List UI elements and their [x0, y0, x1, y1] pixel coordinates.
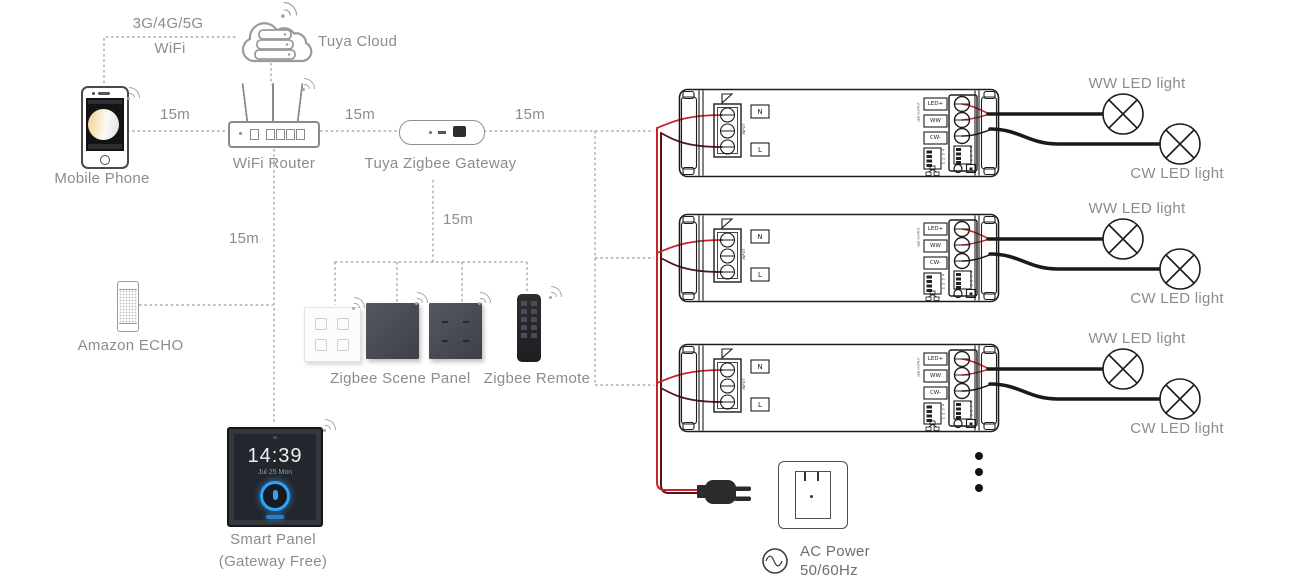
network-label-line1: 3G/4G/5G: [118, 15, 218, 34]
mobile-phone-device: [81, 86, 129, 169]
ac-power-label-line1: AC Power: [800, 543, 870, 562]
output-label: LED OUTPUT: [917, 226, 921, 248]
remote-label: Zigbee Remote: [482, 370, 592, 389]
ww-label: WW: [924, 118, 947, 124]
terminal-l-label: L: [752, 146, 768, 154]
ww-led-lamp-2: [1103, 219, 1143, 259]
phone-home-button: [100, 155, 110, 165]
zigbee-gateway-device: [399, 120, 485, 145]
phone-screen: [86, 98, 124, 151]
dip-numbers: 1 2 3 4: [970, 402, 974, 416]
input-label: INPUT: [742, 120, 747, 138]
dashed-links: [104, 37, 654, 423]
dip-numbers: 1 2 3 4: [942, 275, 946, 289]
dip-numbers: 1 2 3 4: [942, 150, 946, 164]
scene-panel-white: [304, 307, 361, 362]
remote-buttons: [521, 301, 527, 306]
output-label: LED OUTPUT: [917, 356, 921, 378]
cw-light-label: CW LED light: [1112, 165, 1242, 184]
terminal-l-label: L: [752, 271, 768, 279]
echo-label: Amazon ECHO: [68, 337, 193, 356]
cloud-label: Tuya Cloud: [318, 33, 397, 52]
led-controller-2: N L INPUT LED OUTPUT LED+ WW CW- 1 2 3 4…: [678, 213, 1000, 303]
ww-label: WW: [924, 243, 947, 249]
ww-light-label: WW LED light: [1072, 330, 1202, 349]
wall-socket-icon: [778, 461, 848, 529]
gateway-label: Tuya Zigbee Gateway: [358, 155, 523, 174]
power-wire-dark: [661, 133, 700, 493]
voice-button: [260, 481, 290, 511]
output-label: LED OUTPUT: [917, 101, 921, 123]
tuya-cloud-icon: [233, 8, 317, 70]
smart-panel-screen: 14:39 Jul 25 Mon: [234, 434, 316, 520]
ac-power-label-line2: 50/60Hz: [800, 562, 858, 581]
phone-label: Mobile Phone: [52, 170, 152, 189]
scene-panel-label: Zigbee Scene Panel: [330, 370, 470, 389]
cw-led-lamp-3: [1160, 379, 1200, 419]
more-controllers-ellipsis: [975, 452, 983, 492]
led-plus-label: LED+: [924, 356, 947, 362]
ww-led-lamp-1: [1103, 94, 1143, 134]
panel-glow-bar: [266, 515, 284, 519]
distance-label: 15m: [335, 106, 385, 125]
smart-panel-signal-icon: [323, 416, 339, 432]
smart-panel-device: 14:39 Jul 25 Mon: [227, 427, 323, 527]
terminal-n-label: N: [752, 363, 768, 371]
dip-numbers: 1 2 3 4: [970, 147, 974, 161]
wifi-router-device: [228, 83, 320, 148]
smart-panel-label-line1: Smart Panel: [222, 531, 324, 550]
ww-light-label: WW LED light: [1072, 75, 1202, 94]
led-controller-1: N L INPUT LED OUTPUT LED+ WW CW- 1 2 3 4…: [678, 88, 1000, 178]
gateway-port-icon: [453, 126, 466, 137]
router-signal-icon: [302, 75, 318, 91]
remote-signal-icon: [549, 283, 565, 299]
phone-signal-icon: [127, 84, 143, 100]
smart-panel-time: 14:39: [234, 445, 316, 468]
ww-led-lamp-3: [1103, 349, 1143, 389]
mic-icon: [273, 490, 278, 500]
cw-label: CW-: [924, 260, 947, 266]
router-body: [228, 121, 320, 148]
dip-numbers: 1 2 3 4: [970, 272, 974, 286]
dip-numbers: 1 2 3 4: [942, 405, 946, 419]
cw-led-lamp-1: [1160, 124, 1200, 164]
input-label: INPUT: [742, 375, 747, 393]
network-label-line2: WiFi: [120, 40, 220, 59]
smart-panel-label-line2: (Gateway Free): [212, 553, 334, 572]
distance-label: 15m: [150, 106, 200, 125]
router-label: WiFi Router: [228, 155, 320, 174]
terminal-n-label: N: [752, 233, 768, 241]
ac-sine-icon: [763, 549, 787, 573]
distance-label: 15m: [222, 230, 266, 249]
scene-panel-dark-1: [366, 303, 419, 359]
cloud-signal-icon: [281, 0, 301, 18]
distance-label: 15m: [505, 106, 555, 125]
terminal-n-label: N: [752, 108, 768, 116]
amazon-echo-device: [117, 281, 139, 332]
color-temperature-wheel: [88, 109, 119, 140]
terminal-l-label: L: [752, 401, 768, 409]
cw-label: CW-: [924, 390, 947, 396]
led-plus-label: LED+: [924, 101, 947, 107]
scene-panel-dark-2: [429, 303, 482, 359]
cw-light-label: CW LED light: [1112, 290, 1242, 309]
smart-panel-date: Jul 25 Mon: [234, 469, 316, 476]
zigbee-remote-device: [517, 294, 541, 362]
distance-label: 15m: [443, 211, 473, 230]
led-plus-label: LED+: [924, 226, 947, 232]
cw-label: CW-: [924, 135, 947, 141]
scene-panel-signal-icon: [478, 289, 494, 305]
ww-label: WW: [924, 373, 947, 379]
cw-led-lamp-2: [1160, 249, 1200, 289]
power-wire-red: [657, 128, 700, 490]
ww-light-label: WW LED light: [1072, 200, 1202, 219]
cw-light-label: CW LED light: [1112, 420, 1242, 439]
ac-plug-icon: [697, 480, 751, 504]
led-controller-3: N L INPUT LED OUTPUT LED+ WW CW- 1 2 3 4…: [678, 343, 1000, 433]
input-label: INPUT: [742, 245, 747, 263]
